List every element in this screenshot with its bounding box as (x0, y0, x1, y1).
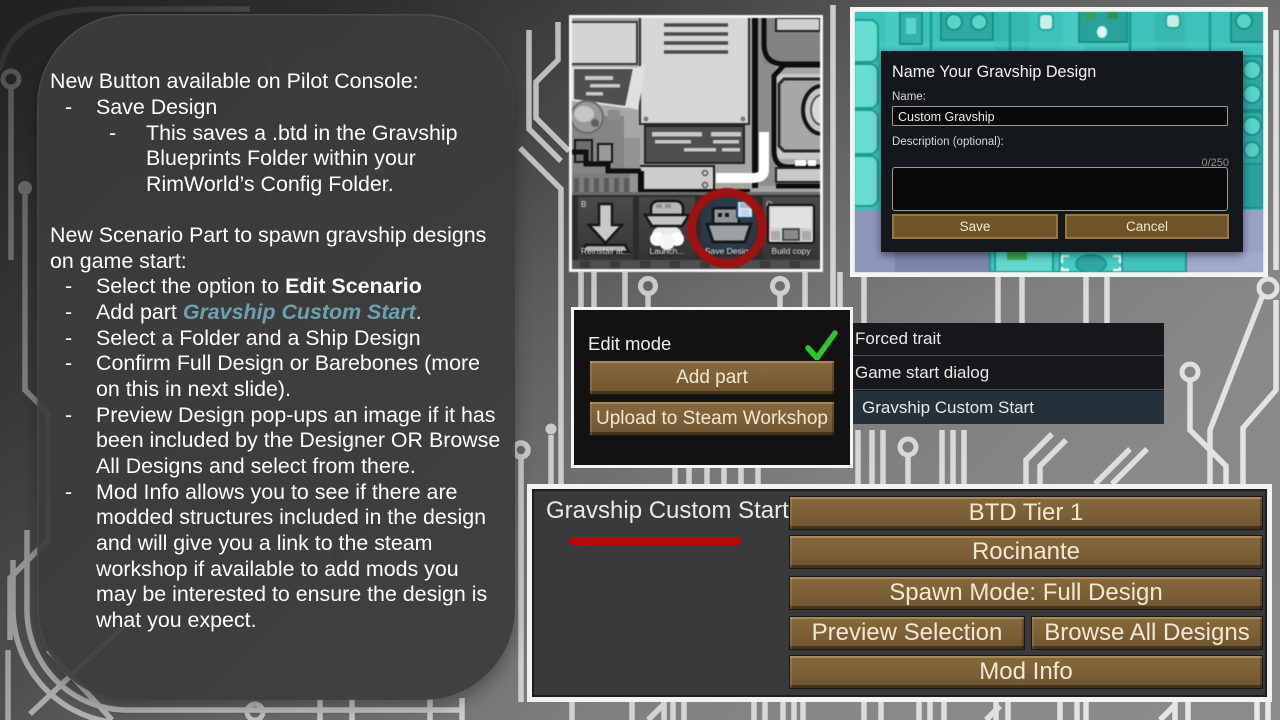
svg-text:B: B (581, 200, 586, 209)
